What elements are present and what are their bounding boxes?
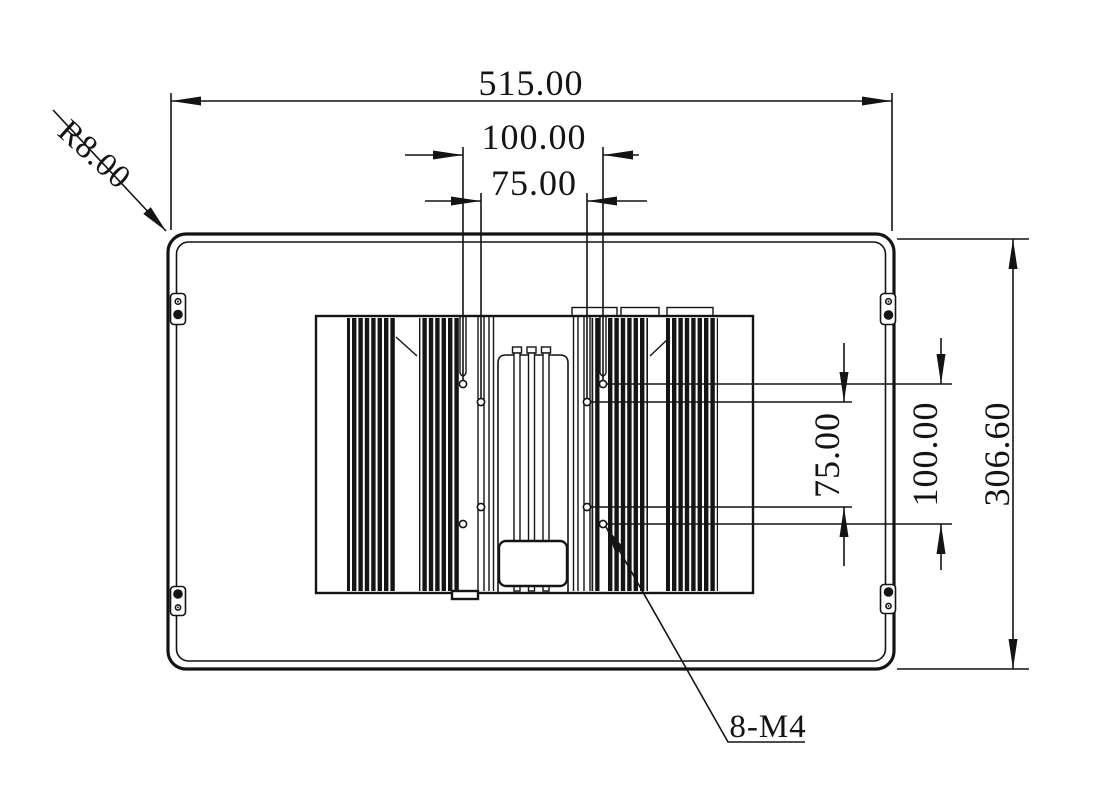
cage-bar-cap	[542, 347, 551, 353]
arrowhead	[451, 197, 481, 206]
heatsink	[316, 308, 753, 600]
arrowhead	[840, 507, 849, 537]
dim-label-vesa-width-75: 75.00	[491, 163, 577, 203]
mounting-tab-left-top	[171, 294, 186, 325]
tab-screw-hole	[173, 310, 183, 320]
vesa-hole-100-bottom-right	[599, 520, 606, 527]
mounting-tab-right-top	[881, 294, 896, 325]
vesa-hole-100-bottom-left	[459, 520, 466, 527]
mounting-tab-left-bottom	[171, 587, 186, 616]
dimension-drawing: 515.00 100.00 75.00 306.60 10	[0, 0, 1120, 800]
arrowhead	[840, 372, 849, 402]
cage-base-box	[499, 541, 567, 586]
fin-group-a	[347, 318, 396, 591]
fin-group-c	[608, 318, 648, 591]
dim-label-vesa-height-75: 75.00	[807, 412, 847, 498]
vesa-hole-75-bottom-left	[477, 503, 484, 510]
vesa-hole-100-top-right	[599, 380, 606, 387]
cage-bar-cap	[513, 347, 522, 353]
fin-group-d	[666, 318, 718, 591]
dim-label-overall-height: 306.60	[977, 402, 1017, 507]
arrowhead	[1009, 239, 1018, 269]
vesa-hole-100-top-left	[459, 380, 466, 387]
tab-pin-dot	[888, 301, 890, 303]
dim-label-vesa-width-100: 100.00	[482, 117, 587, 157]
arrowhead	[433, 151, 463, 160]
tab-pin-dot	[888, 605, 890, 607]
tab-pin-dot	[177, 301, 179, 303]
rail-fin-band	[592, 318, 600, 591]
radius-callout: R8.00	[51, 110, 166, 231]
arrowhead	[862, 97, 892, 106]
arrowhead	[1009, 639, 1018, 669]
dim-label-vesa-height-100: 100.00	[905, 402, 945, 507]
arrowhead	[171, 97, 201, 106]
arrowhead	[937, 354, 946, 384]
tab-screw-hole	[884, 310, 894, 320]
arrowhead	[603, 151, 633, 160]
mounting-tab-right-bottom	[881, 585, 896, 614]
drawing-canvas: 515.00 100.00 75.00 306.60 10	[0, 0, 1120, 800]
heatsink-foot	[452, 591, 478, 599]
vesa-hole-75-bottom-right	[583, 503, 590, 510]
tab-screw-hole	[173, 589, 183, 599]
vesa-hole-75-top-left	[477, 398, 484, 405]
vesa-hole-75-top-right	[583, 398, 590, 405]
thread-label: 8-M4	[729, 709, 806, 745]
cage-bar-cap	[527, 347, 536, 353]
fin-group-b	[419, 318, 459, 591]
arrowhead	[587, 197, 617, 206]
dim-label-overall-width: 515.00	[479, 63, 584, 103]
tab-screw-hole	[884, 587, 894, 597]
radius-label: R8.00	[51, 113, 138, 196]
tab-pin-dot	[177, 607, 179, 609]
arrowhead	[937, 524, 946, 554]
